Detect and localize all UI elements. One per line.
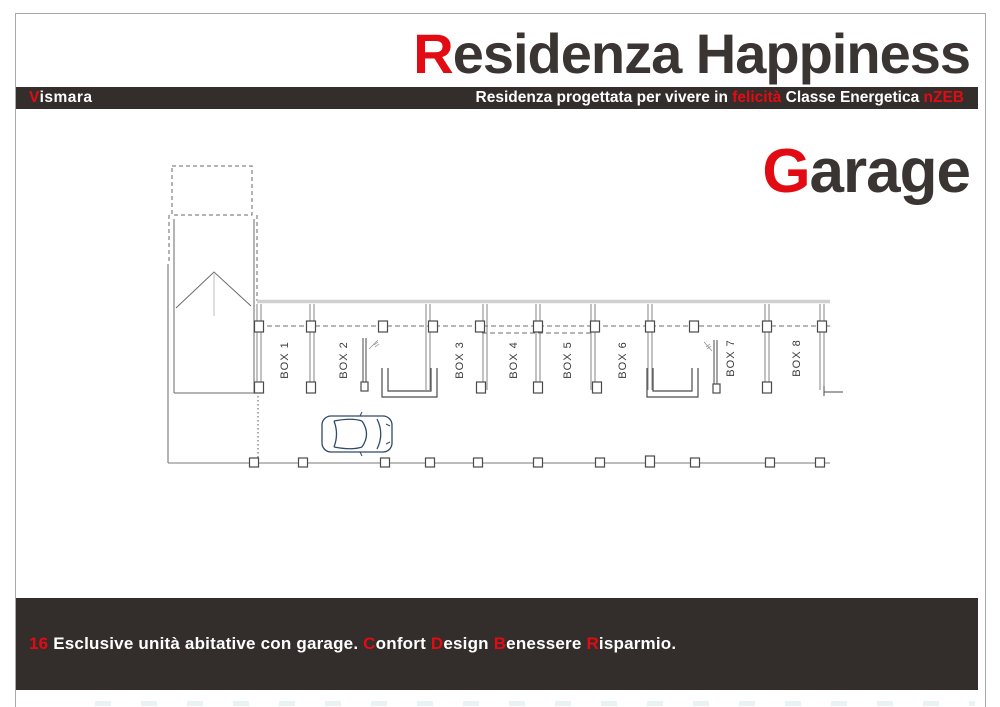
footer-accent: R [586,634,598,653]
brand-logo: Vismara [16,89,93,107]
page-title-rest: esidenza Happiness [453,22,970,85]
footer-band: 16 Esclusive unità abitative con garage.… [16,598,978,690]
dashed-guides [259,326,830,333]
box-label: BOX 7 [725,339,737,376]
footer-accent: D [431,634,443,653]
tagline-accent: felicità [732,89,781,106]
brand-logo-rest: ismara [40,89,93,106]
box-label: BOX 8 [791,339,803,376]
footer-accent: 16 [29,634,48,653]
brochure-page: Residenza Happiness Vismara Residenza pr… [0,0,1000,707]
footer-part: esign [443,634,493,653]
box-labels: BOX 1 BOX 2 BOX 3 BOX 4 BOX 5 BOX 6 BOX … [279,339,803,378]
box-label: BOX 1 [279,341,291,378]
driveway-lines [168,396,830,463]
page-title-accent: R [413,22,452,85]
box-label: BOX 6 [617,341,629,378]
tagline-accent: nZEB [924,89,964,106]
tagline: Residenza progettata per vivere in felic… [476,89,978,107]
header-band: Vismara Residenza progettata per vivere … [16,87,978,109]
section-title-accent: G [762,137,809,206]
footer-part: onfort [376,634,431,653]
car-icon [322,412,392,456]
tagline-part: Classe Energetica [781,89,923,106]
tagline-part: Residenza progettata per vivere in [476,89,733,106]
footer-part: isparmio. [599,634,676,653]
footer-part: Esclusive unità abitative con garage. [48,634,363,653]
ramp-structure [168,166,257,463]
section-title-rest: arage [810,137,970,206]
brand-logo-accent: V [29,89,40,106]
footer-accent: B [494,634,506,653]
box-label: BOX 5 [562,341,574,378]
box-label: BOX 4 [508,341,520,378]
page-title: Residenza Happiness [413,26,970,82]
footer-text: 16 Esclusive unità abitative con garage.… [16,634,676,654]
section-title: Garage [762,141,970,203]
box-label: BOX 3 [454,341,466,378]
box-label: BOX 2 [338,341,350,378]
footer-accent: C [363,634,375,653]
footer-part: enessere [506,634,586,653]
